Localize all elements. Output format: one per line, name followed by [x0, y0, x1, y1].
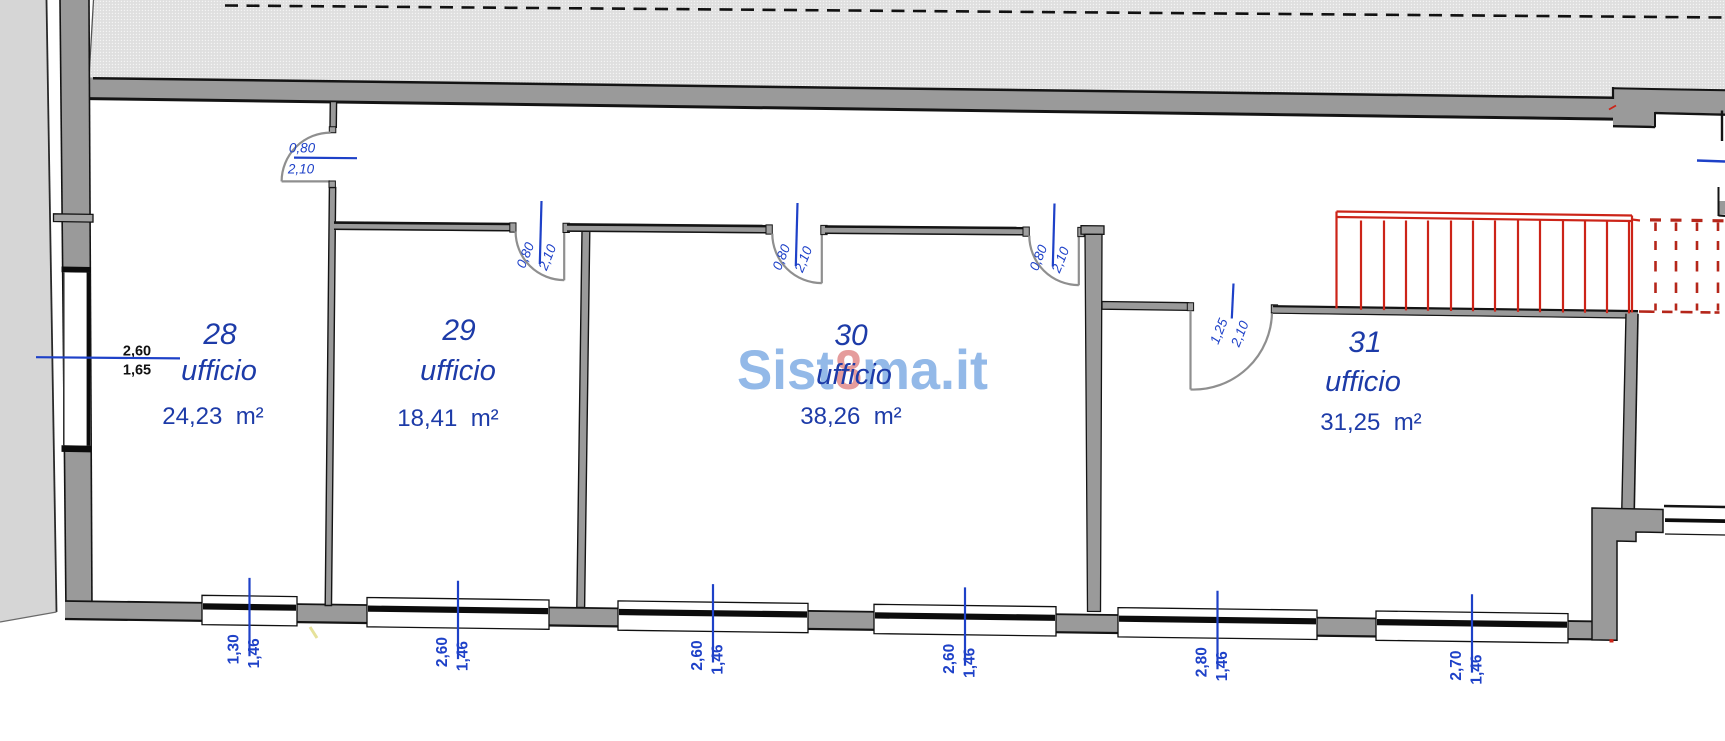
- svg-text:38,26 m²: 38,26 m²: [800, 403, 901, 430]
- svg-text:ufficio: ufficio: [816, 359, 892, 391]
- svg-text:30: 30: [834, 319, 868, 352]
- svg-text:31: 31: [1348, 326, 1381, 359]
- svg-text:2,70: 2,70: [1448, 651, 1465, 681]
- svg-text:2,60: 2,60: [689, 640, 706, 670]
- svg-text:24,23 m²: 24,23 m²: [162, 403, 263, 430]
- svg-text:1,46: 1,46: [246, 638, 263, 669]
- svg-text:1,46: 1,46: [962, 647, 979, 678]
- svg-text:1,46: 1,46: [710, 644, 727, 675]
- svg-text:2,80: 2,80: [1194, 647, 1211, 677]
- svg-text:1,46: 1,46: [1214, 651, 1231, 682]
- svg-text:1,65: 1,65: [123, 363, 151, 379]
- svg-text:ufficio: ufficio: [181, 355, 257, 387]
- svg-text:1,46: 1,46: [455, 641, 472, 672]
- svg-text:ufficio: ufficio: [1325, 366, 1401, 398]
- svg-text:28: 28: [202, 318, 237, 351]
- svg-text:31,25 m²: 31,25 m²: [1320, 409, 1421, 436]
- svg-text:2,60: 2,60: [434, 637, 451, 667]
- svg-text:1,30: 1,30: [226, 634, 243, 664]
- svg-text:18,41 m²: 18,41 m²: [397, 405, 498, 432]
- svg-text:2,10: 2,10: [287, 162, 315, 177]
- svg-text:29: 29: [441, 314, 476, 347]
- svg-text:1,46: 1,46: [1469, 654, 1486, 685]
- svg-text:2,60: 2,60: [941, 644, 958, 674]
- svg-text:0,80: 0,80: [289, 141, 316, 156]
- svg-text:ufficio: ufficio: [420, 355, 496, 387]
